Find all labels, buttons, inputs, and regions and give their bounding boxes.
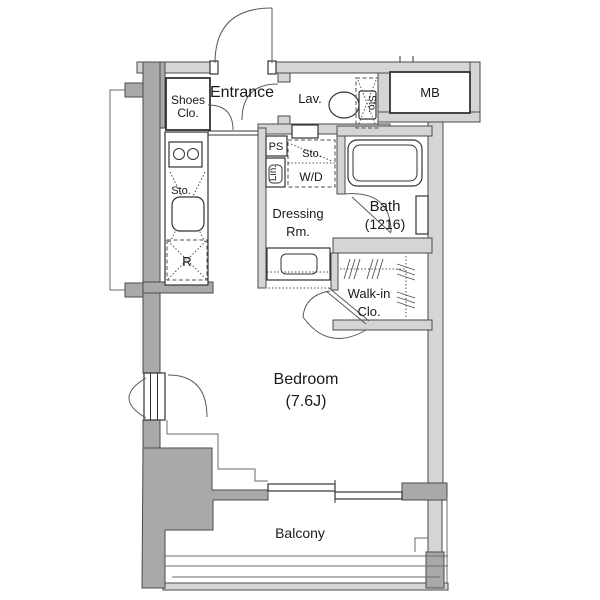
room-dressing: PS Lin. Sto. W/D Dressing Rm. xyxy=(258,136,335,288)
label-dressing-2: Rm. xyxy=(286,224,310,239)
wall xyxy=(428,500,442,552)
floor-plan: Entrance Shoes Clo. Lav. Sto. MB Sto. R xyxy=(0,0,600,600)
label-shoes-closet: Shoes xyxy=(171,93,205,107)
wall-left xyxy=(143,62,160,373)
balcony-railing xyxy=(165,556,448,577)
entrance-door-arc xyxy=(215,8,272,63)
label-washer-dryer: W/D xyxy=(299,170,323,184)
label-bedroom-size: (7.6J) xyxy=(286,393,327,410)
entrance-step xyxy=(208,131,258,135)
label-bath: Bath xyxy=(370,198,401,215)
pilaster xyxy=(125,283,143,297)
bathtub-icon xyxy=(348,140,422,186)
label-bedroom: Bedroom xyxy=(274,371,339,388)
label-shoes-closet-2: Clo. xyxy=(177,106,198,120)
walkin-door-arc xyxy=(303,291,330,317)
wall-right xyxy=(428,122,443,483)
shoes-closet-door-arc xyxy=(208,105,233,130)
label-storage-kitchen: Sto. xyxy=(171,185,191,197)
sink-icon xyxy=(172,197,204,231)
label-walkin: Walk-in xyxy=(348,286,391,301)
vent-ticks xyxy=(400,56,413,62)
window xyxy=(144,373,165,420)
wall xyxy=(378,73,390,112)
wall xyxy=(331,253,338,290)
toilet-icon xyxy=(329,92,359,118)
wall xyxy=(333,320,432,330)
label-walkin-2: Clo. xyxy=(357,304,380,319)
property-line xyxy=(110,90,125,290)
balcony-pillar xyxy=(426,552,444,588)
label-bath-size: (1216) xyxy=(365,216,405,232)
window-swing-arc-in xyxy=(168,375,207,417)
room-meter-box: MB xyxy=(390,72,470,113)
label-meter-box: MB xyxy=(420,85,440,100)
wall xyxy=(337,126,432,136)
label-storage-toilet: Sto. xyxy=(366,95,377,113)
balcony-step xyxy=(415,538,428,552)
label-entrance: Entrance xyxy=(210,84,274,101)
wall-door-jamb xyxy=(402,483,447,500)
wall xyxy=(278,73,290,82)
label-pipe-space: PS xyxy=(269,141,284,153)
sliding-door-panel xyxy=(268,484,335,491)
label-lavatory: Lav. xyxy=(298,91,322,106)
door-jamb xyxy=(210,61,218,74)
vanity-counter xyxy=(267,248,330,280)
label-storage-laundry: Sto. xyxy=(302,148,322,160)
pilaster xyxy=(125,83,143,97)
bath-counter xyxy=(416,196,428,234)
floor-plan-drawing: Entrance Shoes Clo. Lav. Sto. MB Sto. R xyxy=(0,0,600,600)
wall-left xyxy=(143,420,160,448)
wall-bath-left xyxy=(337,136,345,194)
room-bath: Bath (1216) xyxy=(344,140,428,234)
kitchen: Sto. R xyxy=(165,132,208,285)
label-linen: Lin. xyxy=(268,165,279,181)
label-refrigerator: R xyxy=(182,254,191,269)
balcony-edge xyxy=(163,583,448,590)
counter-box xyxy=(292,125,318,138)
label-dressing: Dressing xyxy=(272,206,323,221)
wall-hall xyxy=(258,128,266,288)
wall xyxy=(333,238,432,253)
label-balcony: Balcony xyxy=(275,525,325,541)
sliding-door-panel xyxy=(335,492,402,499)
